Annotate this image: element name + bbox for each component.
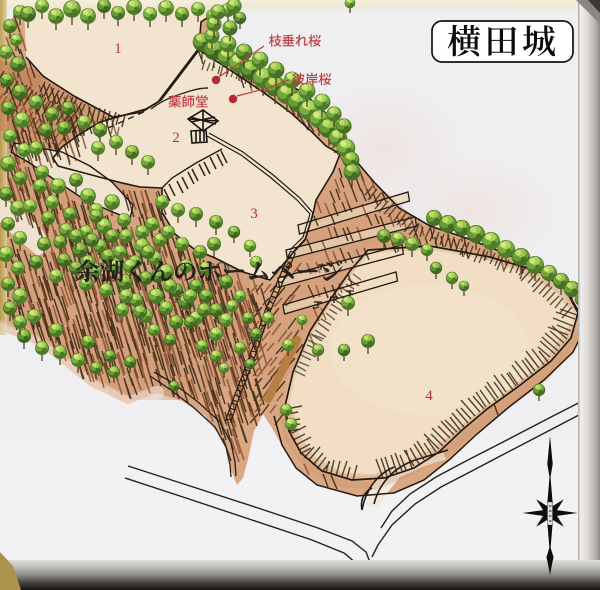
svg-text:1: 1 [114,41,122,57]
svg-text:4: 4 [425,388,433,404]
svg-text:3: 3 [250,206,258,222]
svg-text:2: 2 [172,130,180,146]
